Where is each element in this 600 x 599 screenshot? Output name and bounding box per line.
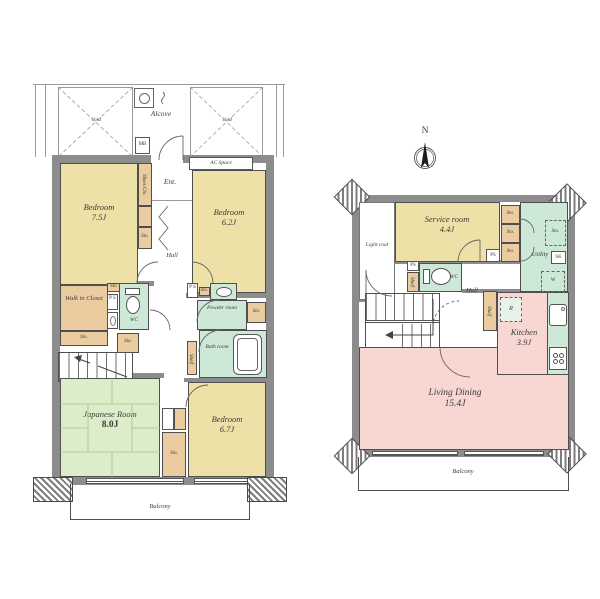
door-arcs-floor2 (366, 219, 534, 377)
door-arcs-floor1 (137, 92, 221, 407)
stairs-arrow-floor2 (385, 299, 433, 339)
tatami-grid (60, 378, 160, 477)
plan-linework-overlay (0, 0, 600, 599)
void-x-lines (58, 87, 263, 157)
bifold-door-zigzag (159, 206, 168, 250)
gas-squiggle (162, 92, 165, 104)
stairs-arrow-floor1 (74, 355, 127, 377)
floor-plan-canvas: Void Void Alcove MB AC Space Bedroom 7.5… (0, 0, 600, 599)
compass-icon (415, 142, 436, 169)
